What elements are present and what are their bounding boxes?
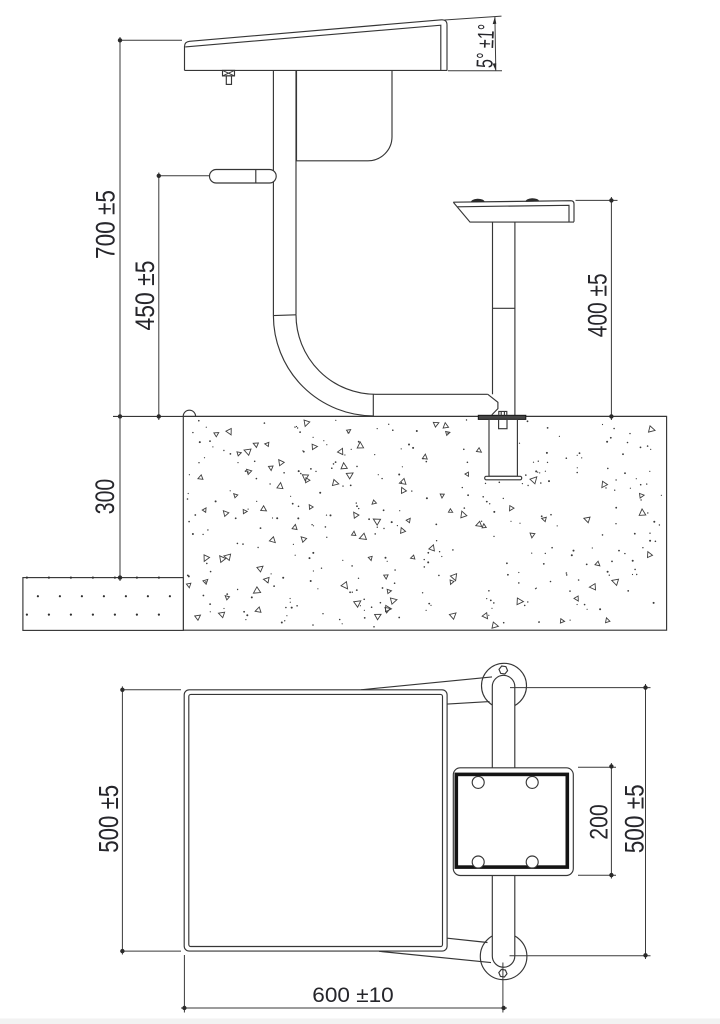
svg-text:600 ±10: 600 ±10 xyxy=(312,983,394,1007)
svg-text:200: 200 xyxy=(586,804,614,840)
svg-text:700 ±5: 700 ±5 xyxy=(91,190,121,259)
svg-text:5° ±1°: 5° ±1° xyxy=(471,23,499,68)
svg-text:400 ±5: 400 ±5 xyxy=(583,273,613,337)
svg-text:300: 300 xyxy=(90,479,120,515)
svg-text:500 ±5: 500 ±5 xyxy=(93,785,124,853)
svg-text:500 ±5: 500 ±5 xyxy=(620,784,650,853)
svg-text:450 ±5: 450 ±5 xyxy=(130,261,160,331)
